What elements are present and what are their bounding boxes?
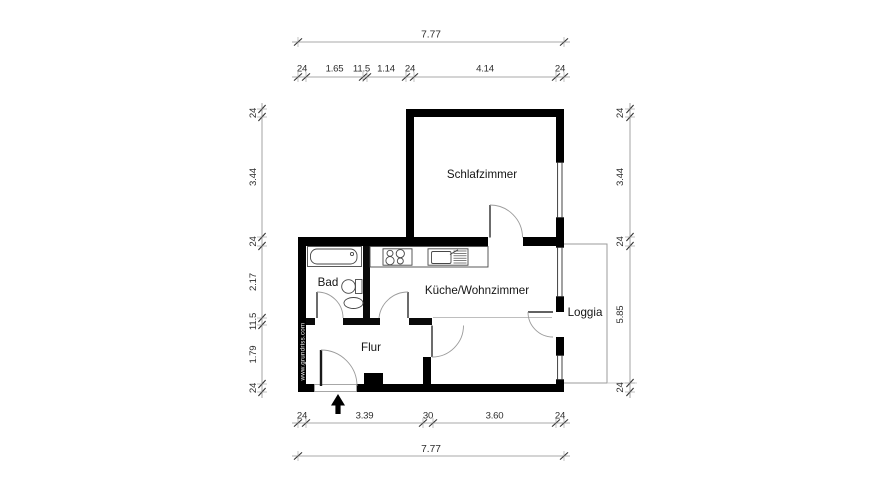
dim-left-seg: 24 bbox=[248, 382, 259, 393]
dim-right-seg: 5.85 bbox=[615, 306, 626, 324]
room-label-schlafzimmer: Schlafzimmer bbox=[447, 168, 517, 181]
dim-bottom-seg: 3.39 bbox=[356, 411, 374, 422]
dim-top-seg: 4.14 bbox=[476, 64, 495, 75]
room-label-bad: Bad bbox=[318, 276, 339, 289]
dim-bottom-seg: 30 bbox=[423, 411, 433, 422]
dim-left-seg: 3.44 bbox=[248, 167, 259, 186]
dim-top-seg: 24 bbox=[297, 64, 308, 75]
dim-bottom-seg: 24 bbox=[555, 411, 566, 422]
dimension-chain-top: 7.77 24 1.65 11.5 1.14 24 4.14 24 bbox=[292, 30, 570, 83]
dim-left-seg: 24 bbox=[248, 236, 259, 247]
door-schlafzimmer bbox=[490, 205, 523, 238]
dim-bottom-seg: 3.60 bbox=[486, 411, 504, 422]
watermark-text: www.grundriss.com bbox=[299, 323, 306, 382]
dim-top-total: 7.77 bbox=[421, 30, 441, 41]
dim-top-seg: 24 bbox=[555, 64, 566, 75]
dimension-chain-left: 24 3.44 24 2.17 11.5 1.79 24 bbox=[248, 103, 267, 398]
window-schlafzimmer bbox=[556, 162, 564, 218]
dim-right-seg: 24 bbox=[615, 236, 626, 247]
dimension-chain-right: 24 3.44 24 5.85 24 bbox=[607, 103, 637, 398]
dim-right-seg: 3.44 bbox=[615, 167, 626, 186]
door-flur-kueche bbox=[379, 292, 408, 318]
bathtub bbox=[308, 247, 362, 267]
dim-top-seg: 1.14 bbox=[377, 64, 396, 75]
door-entrance bbox=[314, 350, 357, 392]
door-flur-wohnzimmer bbox=[432, 318, 552, 358]
entrance-arrow bbox=[331, 394, 345, 414]
door-bad bbox=[317, 292, 343, 318]
door-loggia bbox=[528, 312, 553, 337]
room-label-loggia: Loggia bbox=[568, 306, 603, 319]
dim-bottom-seg: 24 bbox=[297, 411, 308, 422]
window-wohnzimmer-upper bbox=[556, 247, 564, 297]
dim-top-seg: 1.65 bbox=[326, 64, 344, 75]
dim-top-seg: 24 bbox=[405, 64, 416, 75]
dim-bottom-total: 7.77 bbox=[421, 444, 441, 455]
dim-left-seg: 24 bbox=[248, 107, 259, 118]
room-label-kueche-wohnzimmer: Küche/Wohnzimmer bbox=[425, 284, 529, 297]
dim-left-seg: 11.5 bbox=[248, 313, 259, 330]
window-wohnzimmer-lower bbox=[556, 355, 564, 380]
dimension-chain-bottom: 24 3.39 30 3.60 24 7.77 bbox=[292, 411, 570, 462]
toilet bbox=[342, 280, 362, 294]
dim-left-seg: 2.17 bbox=[248, 273, 259, 291]
floor-plan-drawing: www.grundriss.com Schlafzimmer Küche/Woh… bbox=[0, 0, 896, 504]
room-label-flur: Flur bbox=[361, 341, 381, 354]
dim-left-seg: 1.79 bbox=[248, 346, 259, 364]
stove bbox=[383, 249, 412, 265]
kitchen-sink bbox=[428, 249, 468, 265]
dim-right-seg: 24 bbox=[615, 382, 626, 393]
floorplan-page: www.grundriss.com Schlafzimmer Küche/Woh… bbox=[0, 0, 896, 504]
washbasin bbox=[344, 298, 363, 309]
dim-right-seg: 24 bbox=[615, 107, 626, 118]
dim-top-seg: 11.5 bbox=[353, 64, 370, 75]
